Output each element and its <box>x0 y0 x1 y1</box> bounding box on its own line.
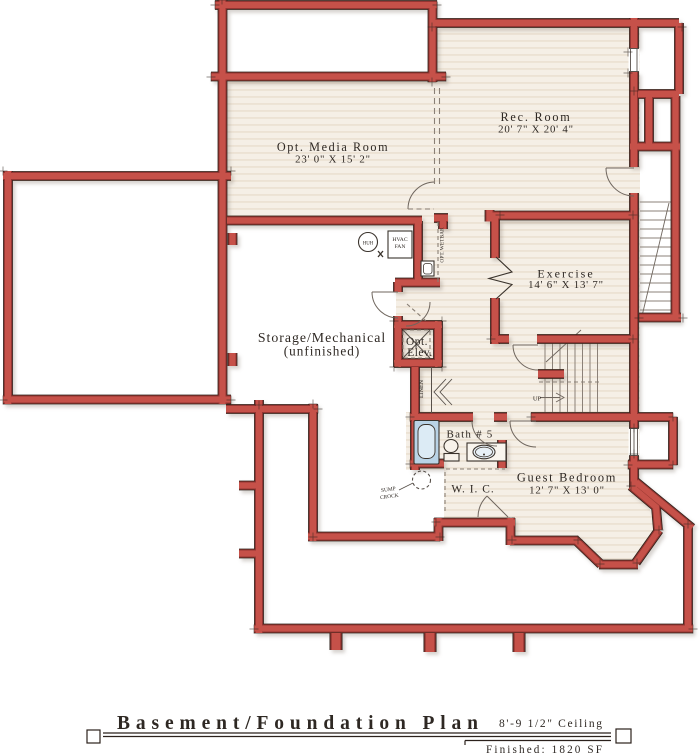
svg-text:14' 6" X 13' 7": 14' 6" X 13' 7" <box>528 279 604 291</box>
svg-text:Bath # 5: Bath # 5 <box>447 429 494 441</box>
svg-text:Guest Bedroom: Guest Bedroom <box>517 471 617 485</box>
svg-text:Basement/Foundation Plan: Basement/Foundation Plan <box>117 713 478 734</box>
svg-text:Opt. Media Room: Opt. Media Room <box>277 140 389 154</box>
svg-text:FAN: FAN <box>395 244 406 250</box>
svg-text:Finished: 1820 SF: Finished: 1820 SF <box>486 744 602 755</box>
svg-text:12' 7" X 13' 0": 12' 7" X 13' 0" <box>529 485 605 497</box>
svg-text:OPT. WETBAR: OPT. WETBAR <box>440 227 446 263</box>
svg-text:UP: UP <box>533 396 542 403</box>
svg-text:(unfinished): (unfinished) <box>284 344 360 359</box>
svg-text:LINEN: LINEN <box>419 379 425 398</box>
svg-text:HUH: HUH <box>363 242 374 247</box>
svg-text:20' 7" X 20' 4": 20' 7" X 20' 4" <box>498 124 574 136</box>
svg-text:HVAC: HVAC <box>392 237 407 243</box>
svg-text:23' 0" X 15' 2": 23' 0" X 15' 2" <box>295 154 371 166</box>
svg-text:W. I. C.: W. I. C. <box>451 484 494 496</box>
svg-text:Rec. Room: Rec. Room <box>500 110 571 124</box>
svg-text:Elev.: Elev. <box>407 347 432 359</box>
